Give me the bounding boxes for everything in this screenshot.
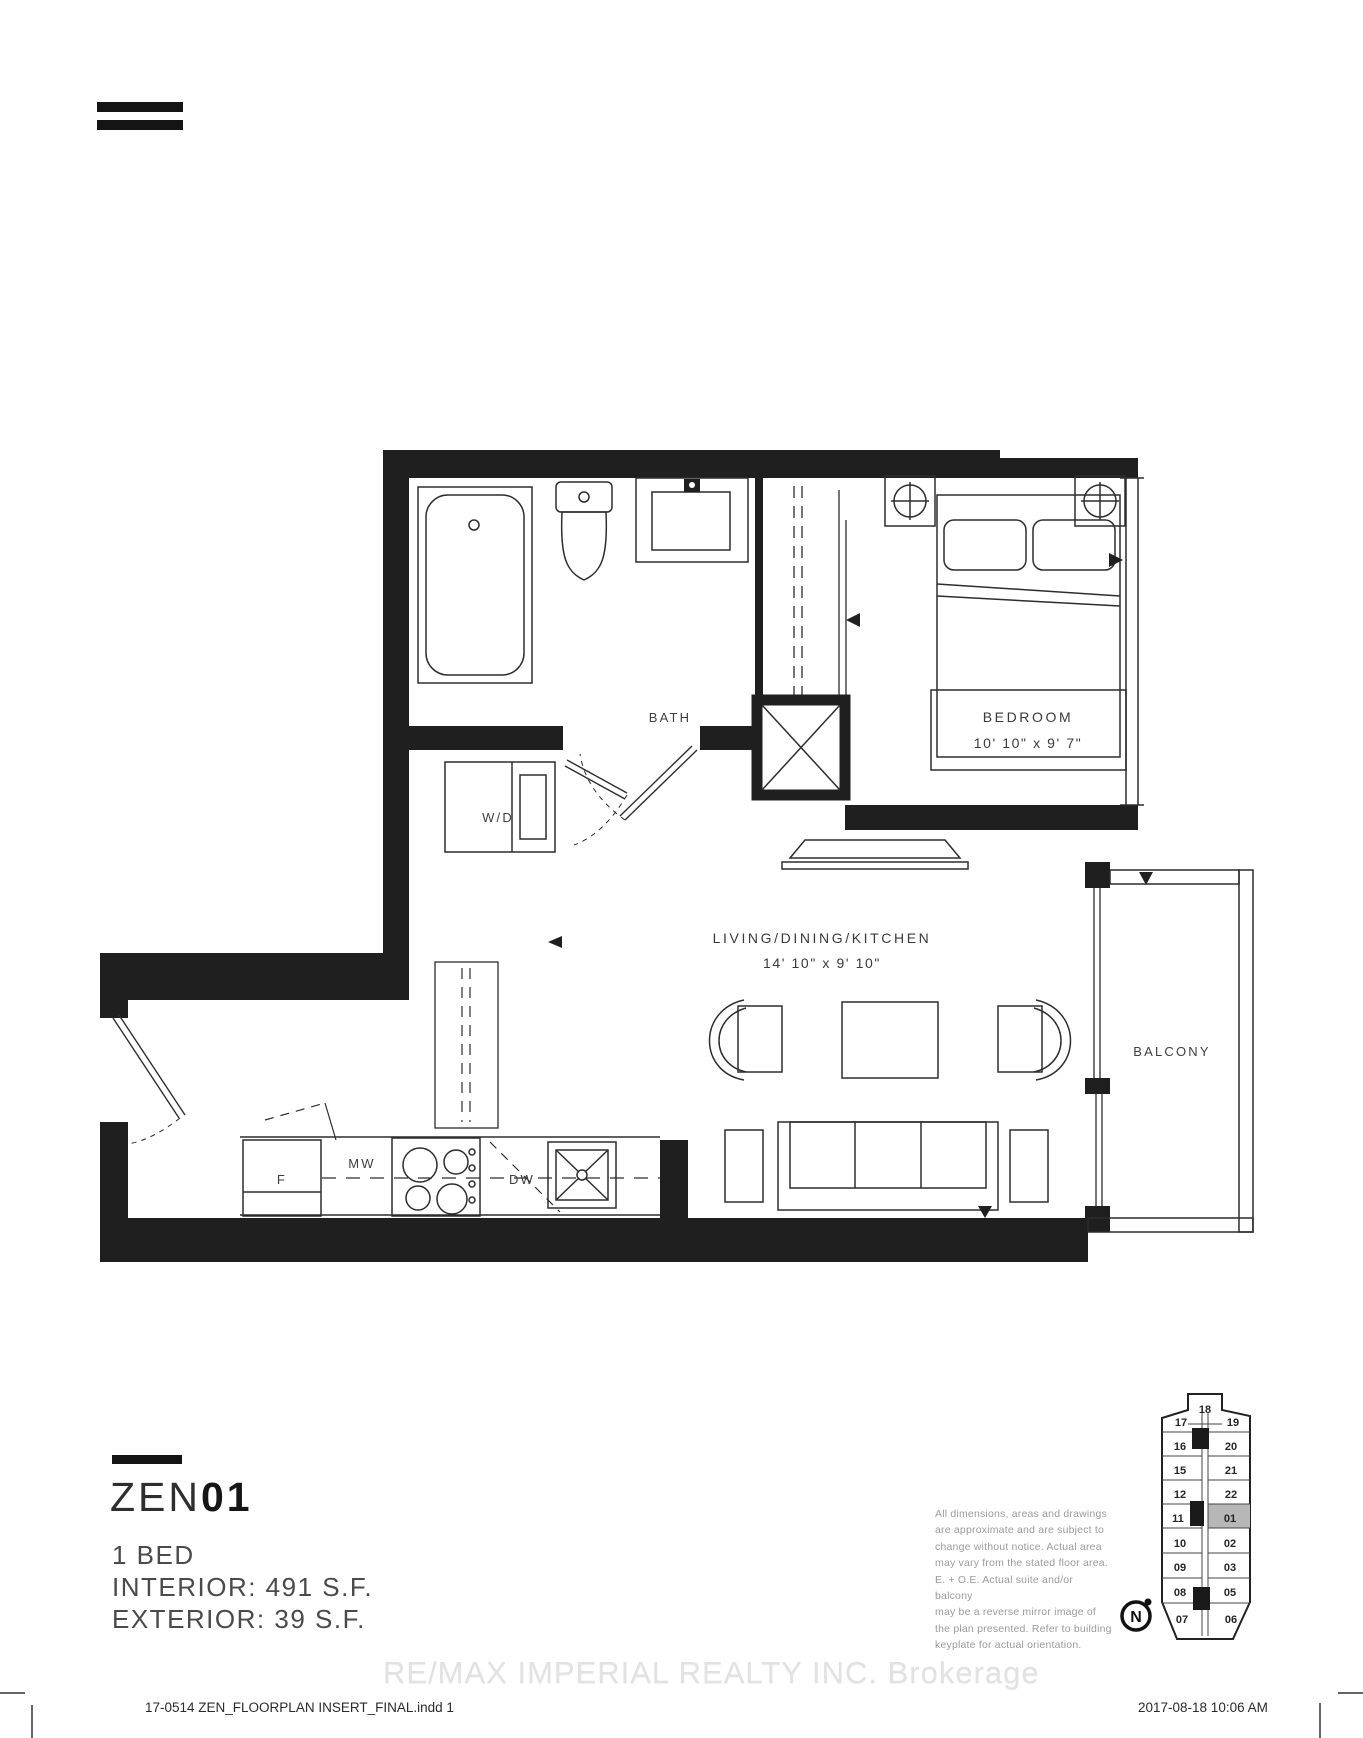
dining-table bbox=[842, 1002, 938, 1078]
armchair-right bbox=[998, 1000, 1071, 1080]
keyplate: 18 17 19 16 20 15 21 12 22 11 01 10 02 0… bbox=[1162, 1394, 1250, 1639]
balcony-label: BALCONY bbox=[1133, 1044, 1211, 1059]
keyplate-unit-18: 18 bbox=[1199, 1404, 1211, 1416]
kitchen-counter bbox=[240, 1137, 660, 1215]
unit-title: ZEN01 bbox=[110, 1474, 253, 1521]
unit-interior-area: INTERIOR: 491 S.F. bbox=[112, 1572, 373, 1603]
fridge-label: F bbox=[277, 1172, 287, 1187]
keyplate-unit-11: 11 bbox=[1172, 1513, 1184, 1525]
media-console bbox=[782, 840, 968, 869]
keyplate-unit-08: 08 bbox=[1174, 1587, 1186, 1599]
sink-vanity bbox=[636, 478, 748, 562]
footer-file-info: 17-0514 ZEN_FLOORPLAN INSERT_FINAL.indd … bbox=[145, 1700, 454, 1715]
bathtub bbox=[418, 487, 532, 683]
keyplate-unit-03: 03 bbox=[1224, 1562, 1236, 1574]
side-table bbox=[725, 1130, 763, 1202]
keyplate-unit-16: 16 bbox=[1174, 1441, 1186, 1453]
bath-label: BATH bbox=[649, 710, 692, 725]
keyplate-unit-06: 06 bbox=[1225, 1614, 1237, 1626]
kitchen-door-swing bbox=[265, 1103, 336, 1140]
keyplate-unit-09: 09 bbox=[1174, 1562, 1186, 1574]
keyplate-unit-21: 21 bbox=[1225, 1465, 1237, 1477]
bath-door-swing bbox=[580, 746, 697, 820]
keyplate-unit-20: 20 bbox=[1225, 1441, 1237, 1453]
stove-burners bbox=[392, 1138, 480, 1216]
entry-closet bbox=[435, 962, 498, 1128]
washer-dryer-unit bbox=[445, 762, 555, 852]
direction-arrow bbox=[548, 553, 1153, 1218]
keyplate-unit-17: 17 bbox=[1175, 1417, 1187, 1429]
armchair-left bbox=[710, 1000, 783, 1080]
living-dimensions: 14' 10" x 9' 10" bbox=[763, 955, 881, 971]
keyplate-unit-10: 10 bbox=[1174, 1538, 1186, 1550]
unit-exterior-area: EXTERIOR: 39 S.F. bbox=[112, 1604, 366, 1635]
ceiling-light-symbol bbox=[1075, 476, 1125, 526]
keyplate-unit-05: 05 bbox=[1224, 1587, 1236, 1599]
north-arrow-icon: N bbox=[1122, 1599, 1152, 1631]
balcony-sliding-door bbox=[1094, 888, 1102, 1206]
watermark: RE/MAX IMPERIAL REALTY INC. Brokerage bbox=[383, 1655, 1040, 1691]
keyplate-unit-01: 01 bbox=[1224, 1513, 1236, 1525]
bedroom-dimensions: 10' 10" x 9' 7" bbox=[974, 735, 1083, 751]
shaft-elevator bbox=[757, 700, 845, 795]
ceiling-light-symbol bbox=[885, 476, 935, 526]
keyplate-unit-22: 22 bbox=[1225, 1489, 1237, 1501]
wd-door-swing bbox=[565, 760, 627, 845]
keyplate-unit-15: 15 bbox=[1174, 1465, 1186, 1477]
microwave-label: MW bbox=[348, 1156, 376, 1171]
title-accent-bar bbox=[112, 1455, 182, 1464]
dishwasher-label: DW bbox=[509, 1172, 535, 1187]
unit-name-number: 01 bbox=[201, 1474, 253, 1520]
keyplate-unit-07: 07 bbox=[1176, 1614, 1188, 1626]
sofa bbox=[778, 1122, 998, 1210]
logo-mark bbox=[97, 102, 183, 130]
disclaimer-text: All dimensions, areas and drawings are a… bbox=[935, 1506, 1113, 1654]
bed bbox=[931, 495, 1126, 770]
footer-timestamp: 2017-08-18 10:06 AM bbox=[1138, 1700, 1268, 1715]
kitchen-sink bbox=[548, 1142, 616, 1208]
living-dining-kitchen-label: LIVING/DINING/KITCHEN bbox=[713, 930, 932, 946]
bedroom-label: BEDROOM bbox=[983, 709, 1074, 725]
bedroom-window-wall bbox=[1120, 478, 1144, 805]
closet-sliding-doors bbox=[794, 486, 846, 695]
unit-name-prefix: ZEN bbox=[110, 1474, 201, 1520]
floorplan-page: { "plan": { "labels": { "bath": "BATH", … bbox=[0, 0, 1363, 1738]
keyplate-unit-19: 19 bbox=[1227, 1417, 1239, 1429]
keyplate-unit-12: 12 bbox=[1174, 1489, 1186, 1501]
keyplate-unit-02: 02 bbox=[1224, 1538, 1236, 1550]
toilet bbox=[556, 482, 612, 580]
unit-bed-type: 1 BED bbox=[112, 1540, 195, 1571]
washer-dryer-label: W/D bbox=[482, 810, 514, 825]
side-table bbox=[1010, 1130, 1048, 1202]
north-label: N bbox=[1130, 1609, 1142, 1626]
